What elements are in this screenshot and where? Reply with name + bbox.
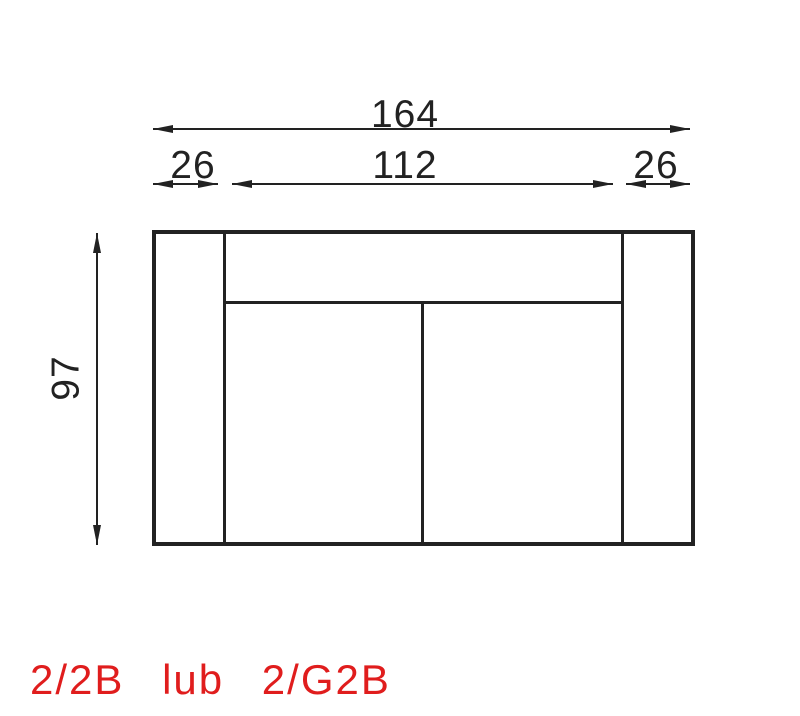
arrowhead-right-icon [198,180,218,188]
arrowhead-left-icon [153,180,173,188]
dim-line-seat-width [232,183,613,185]
arrowhead-left-icon [232,180,252,188]
seat-cushion-divider [421,302,424,546]
dim-label-seat-width: 112 [372,146,437,185]
left-armrest-divider [223,230,226,546]
arrowhead-down-icon [93,525,101,545]
dim-line-right-armrest [626,183,690,185]
dim-label-depth: 97 [47,355,86,400]
dim-line-total-width [153,128,690,130]
arrowhead-right-icon [670,180,690,188]
furniture-dimension-diagram: 164 26 112 26 97 2/2B lub 2/G2B [0,0,800,716]
arrowhead-right-icon [670,125,690,133]
dim-line-left-armrest [153,183,218,185]
arrowhead-left-icon [153,125,173,133]
arrowhead-right-icon [593,180,613,188]
arrowhead-up-icon [93,233,101,253]
dim-line-depth [96,233,98,545]
variant-caption: 2/2B lub 2/G2B [30,659,391,701]
arrowhead-left-icon [626,180,646,188]
right-armrest-divider [621,230,624,546]
